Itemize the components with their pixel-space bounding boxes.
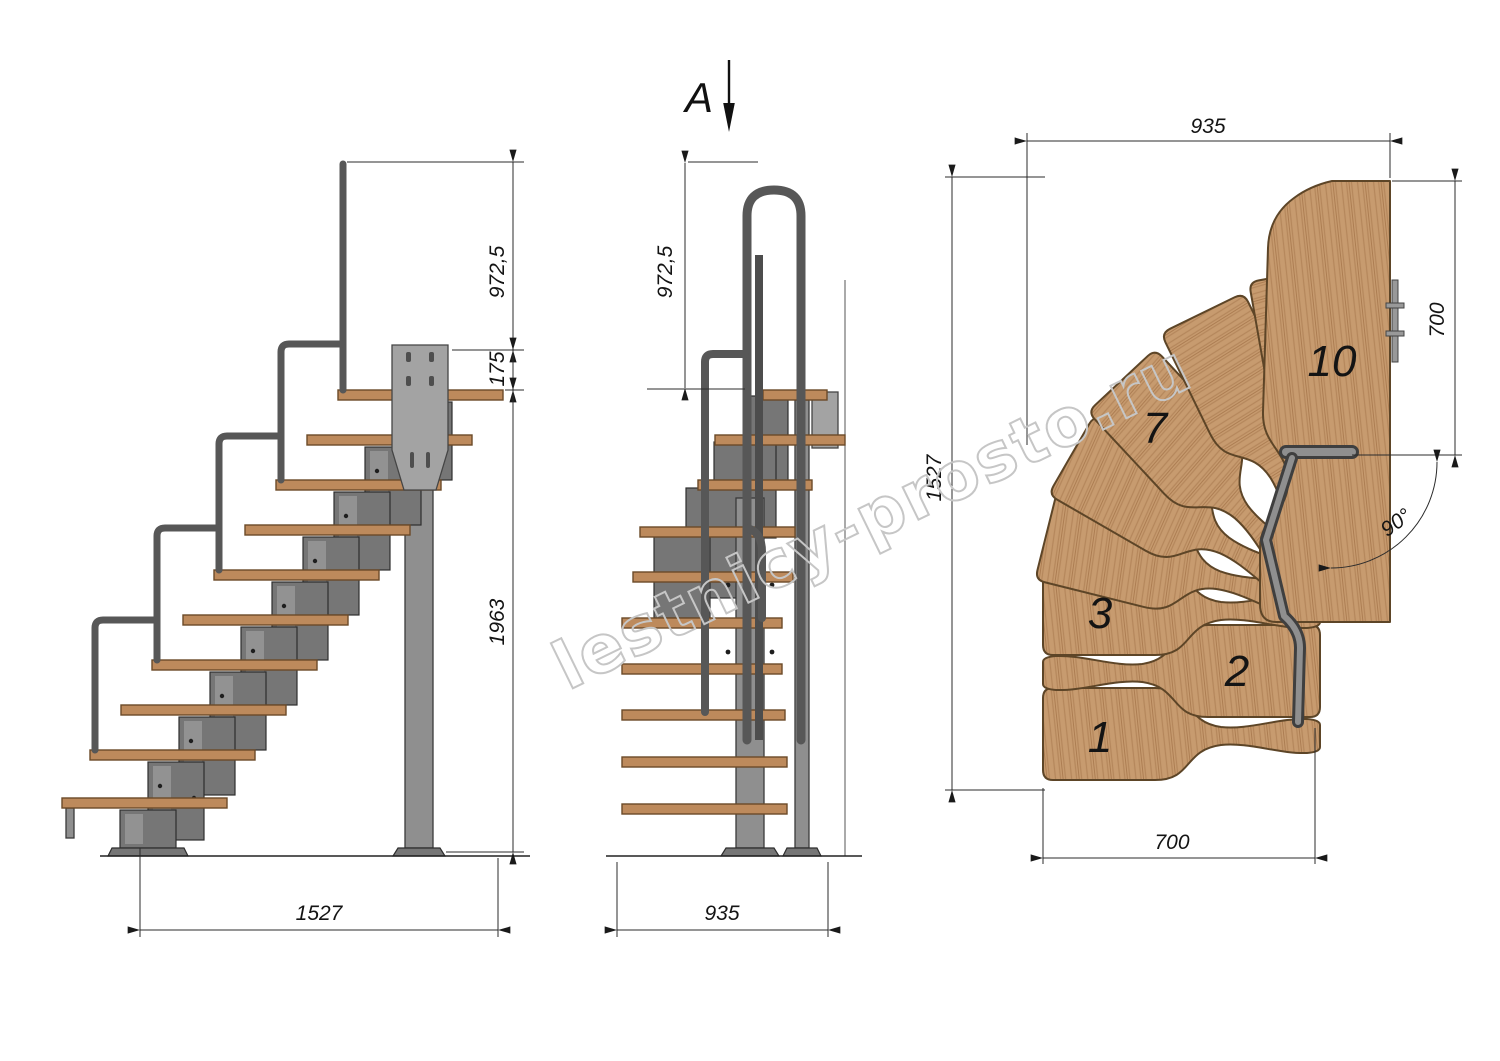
dim-plan-flight-width: 700 bbox=[1154, 831, 1189, 854]
dim-front-width: 935 bbox=[704, 902, 739, 925]
front-column-base bbox=[721, 848, 779, 856]
dim-plan-left-length: 1527 bbox=[923, 453, 946, 501]
side-mounting-plate bbox=[392, 345, 448, 490]
step-number-7: 7 bbox=[1143, 404, 1169, 453]
step-number-10: 10 bbox=[1308, 337, 1357, 386]
section-arrowhead bbox=[723, 103, 735, 132]
dim-plan-landing-depth: 700 bbox=[1426, 302, 1449, 337]
section-arrow: A bbox=[682, 60, 735, 132]
side-column-base-flange bbox=[393, 848, 445, 856]
plan-view: 1 2 3 7 10 935 1527 700 700 90° bbox=[923, 115, 1462, 864]
section-label: A bbox=[682, 74, 713, 121]
front-modules bbox=[654, 396, 788, 618]
side-view: 972,5 175 1963 1527 bbox=[62, 162, 530, 937]
dim-side-plate-rise: 175 bbox=[486, 351, 509, 386]
staircase-drawing: 972,5 175 1963 1527 A bbox=[0, 0, 1500, 1061]
step-number-2: 2 bbox=[1224, 647, 1249, 696]
technical-drawing-canvas: 972,5 175 1963 1527 A bbox=[0, 0, 1500, 1061]
front-view: A bbox=[606, 60, 862, 937]
plan-landing-10 bbox=[1260, 181, 1390, 622]
dim-side-rail-height: 972,5 bbox=[486, 245, 509, 298]
dim-side-run: 1527 bbox=[296, 902, 344, 925]
dim-front-rail-height: 972,5 bbox=[654, 245, 677, 298]
step-number-1: 1 bbox=[1088, 713, 1112, 762]
dim-side-column-height: 1963 bbox=[486, 598, 509, 645]
step-number-3: 3 bbox=[1088, 589, 1113, 638]
front-post-base bbox=[783, 848, 821, 856]
dim-plan-top-width: 935 bbox=[1190, 115, 1225, 138]
